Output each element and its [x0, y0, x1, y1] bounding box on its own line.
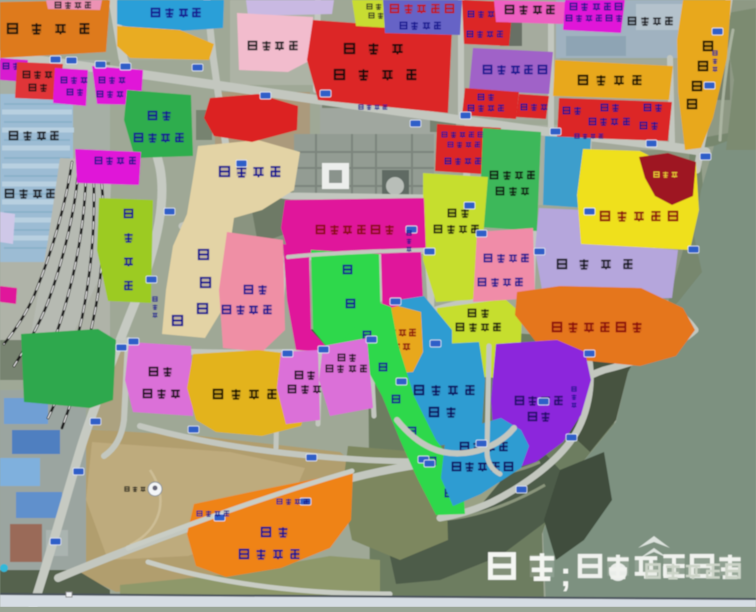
svg-text:;: ;	[560, 556, 571, 594]
